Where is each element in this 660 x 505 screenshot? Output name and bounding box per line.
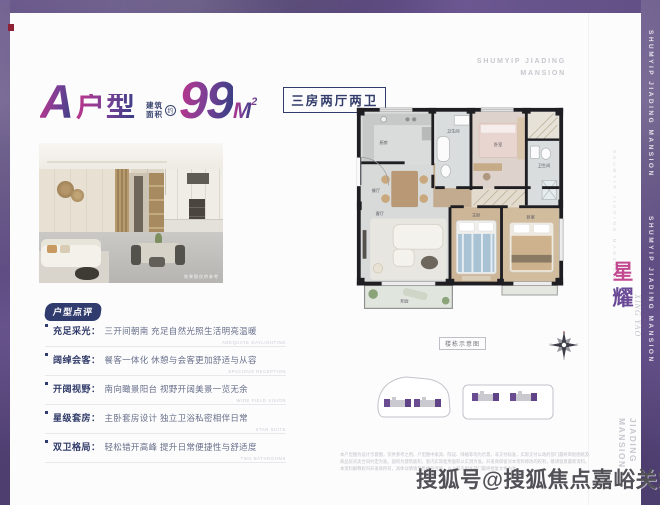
area-approx-circle: 约 [165,105,176,116]
photo-caption: 效果图仅供参考 [184,274,219,280]
brand-line1: SHUMYIP JIADING [460,56,566,68]
master-bed [456,221,496,281]
bedroom2-bed [510,222,554,272]
svg-text:N: N [563,330,566,334]
area-prefix-line1: 建筑 [146,101,163,110]
page-border-right: SHUMYIP JIADING MANSION SHUMYIP JIADING … [641,0,660,505]
photo-plant [155,233,162,243]
review-list: 充足采光：三开间朝南 充足自然光照生活明亮温暖 ADEQUATE DAYLIGH… [45,318,286,463]
svg-text:卧室: 卧室 [494,141,502,148]
photo-dining-chair [131,245,141,265]
interior-render-photo: 效果图仅供参考 [39,143,223,283]
svg-text:卧室: 卧室 [526,214,534,221]
svg-text:卫生间: 卫生间 [447,128,460,135]
site-diagram [368,372,558,422]
brand-top-right: SHUMYIP JIADING MANSION [460,56,566,81]
page-border-top [0,0,660,13]
photo-range-hood [187,173,209,184]
bullet-square-icon [45,324,48,327]
svg-text:阳台: 阳台 [400,298,408,305]
area-exponent: 2 [251,97,257,108]
svg-text:客厅: 客厅 [376,210,384,217]
area-prefix: 建筑 面积 约 [146,101,176,119]
photo-ceiling [39,143,223,169]
page-border-left [0,0,10,505]
border-vertical-text: SHUMYIP JIADING MANSION [647,216,654,364]
review-item: 阔绰会客：餐客一体化 休憩与会客更加舒适与从容 SPACIOUS RECEPTI… [45,347,286,376]
svg-text:E: E [576,343,578,347]
review-item: 双卫格局：轻松错开高峰 提升日常便捷性与舒适度 TWO BATHROOMS [45,434,286,463]
corner-red-mark [8,24,14,31]
svg-text:S: S [563,357,565,360]
unit-word: 户型 [76,94,136,122]
photo-dining-chair [149,257,165,267]
floorplan-poster-page: SHUMYIP JIADING MANSION SHUMYIP JIADING … [0,0,660,505]
photo-sofa [41,239,101,267]
photo-coffee-table [75,267,99,280]
area-prefix-line2: 面积 [146,110,163,119]
compass-icon: N E S W [549,330,579,360]
review-item: 充足采光：三开间朝南 充足自然光照生活明亮温暖 ADEQUATE DAYLIGH… [45,318,286,347]
svg-text:厨房: 厨房 [379,139,387,146]
svg-text:卫生间: 卫生间 [538,162,551,169]
photo-shelf-unit [149,173,164,237]
review-item: 开阔视野：南向瞰景阳台 视野开阔美景一览无余 WIDE FIELD VISION [45,376,286,405]
project-name-vertical: 星 耀 [611,260,635,312]
floor-plan: 厨房 卫生间 卧室 卫生间 餐厅 客厅 主卧 卧室 阳台 [355,104,565,318]
sohu-watermark: 搜狐号@搜狐焦点嘉峪关站 [416,463,660,494]
review-item: 星级套房：主卧套房设计 独立卫浴私密相伴日常 STAR SUITE [45,405,286,434]
plan-caption: 楼栋示意图 [439,337,486,350]
photo-counter [164,219,223,233]
bullet-square-icon [45,411,48,414]
right-divider-line [588,13,589,505]
border-vertical-text: SHUMYIP JIADING MANSION [647,30,654,178]
brand-line2: MANSION [460,68,566,80]
svg-text:W: W [549,343,552,347]
unit-title-block: A 户型 建筑 面积 约 99 M 2 三房两厅两卫 [40,76,386,122]
bullet-square-icon [45,440,48,443]
wall-art-icon [71,189,84,202]
bullet-square-icon [45,353,48,356]
bullet-square-icon [45,382,48,385]
svg-text:餐厅: 餐厅 [372,187,380,194]
unit-letter: A [40,83,74,122]
svg-text:主卧: 主卧 [472,212,480,219]
living-furniture [363,219,447,280]
photo-dining-chair [175,245,185,265]
area-value: 99 [179,81,233,122]
area-unit: M [233,100,251,122]
